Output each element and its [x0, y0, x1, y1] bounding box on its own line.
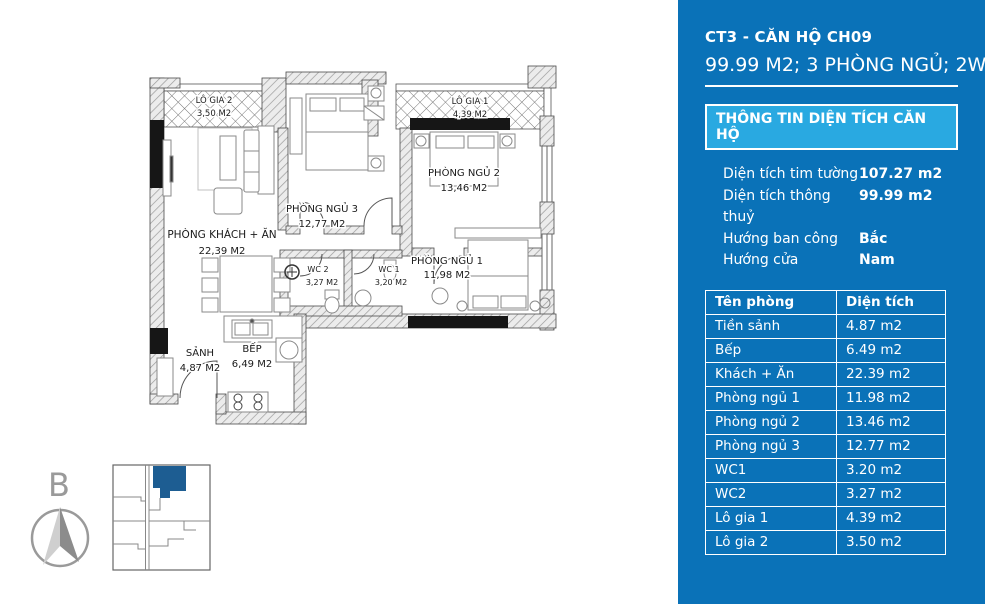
info-label: Diện tích thông thuỷ [723, 186, 859, 229]
table-row: Lô gia 2 3.50 m2 [706, 530, 946, 554]
room-area: 12.77 m2 [837, 434, 946, 458]
room-name: Tiền sảnh [706, 314, 837, 338]
room-name: Lô gia 1 [706, 506, 837, 530]
room-area: 22.39 m2 [837, 362, 946, 386]
table-row: Phòng ngủ 2 13.46 m2 [706, 410, 946, 434]
info-label: Diện tích tim tường [723, 164, 859, 186]
sofa-icon [258, 126, 274, 194]
info-value: 107.27 m2 [859, 164, 942, 186]
room-label-sanh: SẢNH [186, 345, 214, 359]
unit-subtitle: 99.99 M2; 3 PHÒNG NGỦ; 2WC [705, 54, 961, 76]
floor-plan: LÔ GIA 2 3,50 M2 PHÒNG NGỦ 3 12,77 M2 LÔ… [0, 0, 678, 604]
table-header-area: Diện tích [837, 290, 946, 314]
table-row: Phòng ngủ 3 12.77 m2 [706, 434, 946, 458]
info-row: Hướng cửa Nam [723, 250, 961, 272]
room-area: 3.20 m2 [837, 458, 946, 482]
svg-text:22,39 M2: 22,39 M2 [199, 246, 246, 257]
table-row: Bếp 6.49 m2 [706, 338, 946, 362]
table-row: Phòng ngủ 1 11.98 m2 [706, 386, 946, 410]
coffee-table-icon [220, 136, 236, 180]
section-header: THÔNG TIN DIỆN TÍCH CĂN HỘ [705, 104, 958, 150]
side-table-icon [432, 288, 448, 304]
svg-text:13,46 M2: 13,46 M2 [441, 183, 488, 194]
room-name: Khách + Ăn [706, 362, 837, 386]
unit-title: CT3 - CĂN HỘ CH09 [705, 28, 961, 46]
area-table: Tên phòng Diện tích Tiền sảnh 4.87 m2 Bế… [705, 290, 946, 555]
compass: B [32, 466, 88, 566]
svg-text:11,98 M2: 11,98 M2 [424, 270, 471, 281]
room-label-khach: PHÒNG KHÁCH + ĂN [167, 228, 276, 241]
room-label-wc2: WC 2 [307, 265, 328, 274]
table-row: WC1 3.20 m2 [706, 458, 946, 482]
svg-text:6,49 M2: 6,49 M2 [232, 359, 272, 370]
room-label-logia1: LÔ GIA 1 [452, 95, 489, 107]
info-label: Hướng cửa [723, 250, 859, 272]
info-panel: CT3 - CĂN HỘ CH09 99.99 M2; 3 PHÒNG NGỦ;… [678, 0, 985, 604]
room-name: WC2 [706, 482, 837, 506]
info-row: Diện tích tim tường 107.27 m2 [723, 164, 961, 186]
table-row: WC2 3.27 m2 [706, 482, 946, 506]
wardrobe-icon [290, 98, 302, 154]
page: LÔ GIA 2 3,50 M2 PHÒNG NGỦ 3 12,77 M2 LÔ… [0, 0, 985, 604]
armchair-icon [214, 188, 242, 214]
room-area: 3.50 m2 [837, 530, 946, 554]
hall-closet [157, 358, 173, 396]
room-area: 6.49 m2 [837, 338, 946, 362]
room-name: Phòng ngủ 2 [706, 410, 837, 434]
info-label: Hướng ban công [723, 229, 859, 251]
info-row: Diện tích thông thuỷ 99.99 m2 [723, 186, 961, 229]
shelf-icon [455, 228, 541, 238]
table-row: Khách + Ăn 22.39 m2 [706, 362, 946, 386]
unit-info: Diện tích tim tường 107.27 m2 Diện tích … [723, 164, 961, 272]
key-plan [113, 465, 210, 570]
svg-text:4,87 M2: 4,87 M2 [180, 363, 220, 374]
door-bedroom2 [364, 198, 392, 226]
divider [705, 85, 958, 87]
room-name: Bếp [706, 338, 837, 362]
room-name: Lô gia 2 [706, 530, 837, 554]
room-label-ngu2: PHÒNG NGỦ 2 [428, 165, 500, 179]
tv-icon [170, 156, 173, 182]
dining-table-icon [220, 256, 272, 312]
stove-icon [228, 392, 268, 412]
room-label-wc1: WC 1 [378, 265, 399, 274]
info-row: Hướng ban công Bắc [723, 229, 961, 251]
room-area: 11.98 m2 [837, 386, 946, 410]
room-label-bep: BẾP [242, 341, 261, 355]
table-header-row: Tên phòng Diện tích [706, 290, 946, 314]
room-label-ngu3: PHÒNG NGỦ 3 [286, 201, 358, 215]
washbasin-icon-2 [355, 290, 371, 306]
svg-text:4,39 M2: 4,39 M2 [453, 110, 487, 120]
room-area: 4.39 m2 [837, 506, 946, 530]
room-name: Phòng ngủ 1 [706, 386, 837, 410]
svg-text:3,50 M2: 3,50 M2 [197, 109, 231, 119]
room-name: WC1 [706, 458, 837, 482]
svg-text:12,77 M2: 12,77 M2 [299, 219, 346, 230]
compass-letter: B [48, 466, 70, 504]
room-label-ngu1: PHÒNG NGỦ 1 [411, 253, 483, 267]
room-area: 13.46 m2 [837, 410, 946, 434]
room-area: 3.27 m2 [837, 482, 946, 506]
table-header-room: Tên phòng [706, 290, 837, 314]
compass-needle-light [43, 507, 60, 565]
table-row: Lô gia 1 4.39 m2 [706, 506, 946, 530]
info-value: 99.99 m2 [859, 186, 933, 229]
room-name: Phòng ngủ 3 [706, 434, 837, 458]
svg-text:3,20 M2: 3,20 M2 [375, 278, 407, 287]
table-row: Tiền sảnh 4.87 m2 [706, 314, 946, 338]
svg-text:3,27 M2: 3,27 M2 [306, 278, 338, 287]
info-value: Nam [859, 250, 895, 272]
room-label-logia2: LÔ GIA 2 [196, 94, 233, 106]
room-area: 4.87 m2 [837, 314, 946, 338]
info-value: Bắc [859, 229, 887, 251]
